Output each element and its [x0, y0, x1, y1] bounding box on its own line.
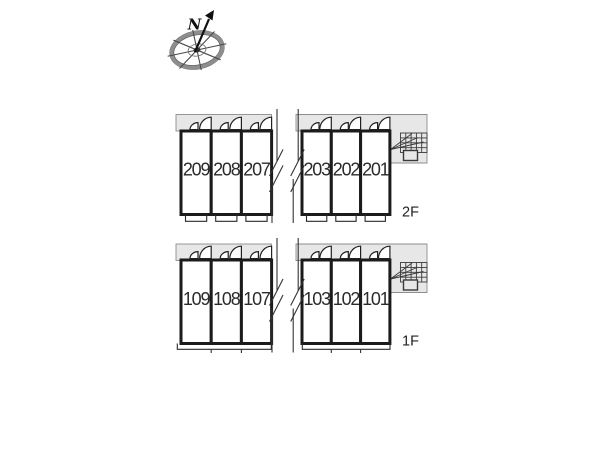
room-number: 101: [362, 289, 390, 309]
room-101: 101: [361, 246, 390, 343]
floor-label-2f: 2F: [402, 205, 419, 221]
room-201: 201: [361, 117, 390, 214]
room-108: 108: [211, 246, 241, 343]
room-102: 102: [331, 246, 360, 343]
room-107: 107: [241, 246, 271, 343]
floor-1f-plan: 109 108 107 103 102: [176, 238, 427, 353]
floor-label-1f: 1F: [402, 334, 419, 350]
room-202: 202: [331, 117, 360, 214]
floorplan-svg: N 209: [0, 0, 600, 450]
room-number: 107: [243, 289, 271, 309]
room-number: 209: [183, 160, 211, 180]
room-number: 103: [303, 289, 331, 309]
room-number: 203: [303, 160, 331, 180]
room-209: 209: [181, 117, 211, 214]
room-number: 109: [183, 289, 211, 309]
room-number: 108: [213, 289, 241, 309]
room-207: 207: [241, 117, 271, 214]
compass-rose: N: [163, 10, 230, 76]
room-number: 208: [213, 160, 241, 180]
room-103: 103: [302, 246, 331, 343]
floor-2f-plan: 209 208 207 203 202: [176, 109, 427, 223]
room-number: 207: [243, 160, 271, 180]
room-208: 208: [211, 117, 241, 214]
room-203: 203: [302, 117, 331, 214]
floorplan-canvas: N 209: [0, 0, 600, 450]
room-109: 109: [181, 246, 211, 343]
room-number: 102: [333, 289, 361, 309]
room-number: 201: [362, 160, 390, 180]
room-number: 202: [333, 160, 361, 180]
north-label: N: [187, 16, 203, 34]
